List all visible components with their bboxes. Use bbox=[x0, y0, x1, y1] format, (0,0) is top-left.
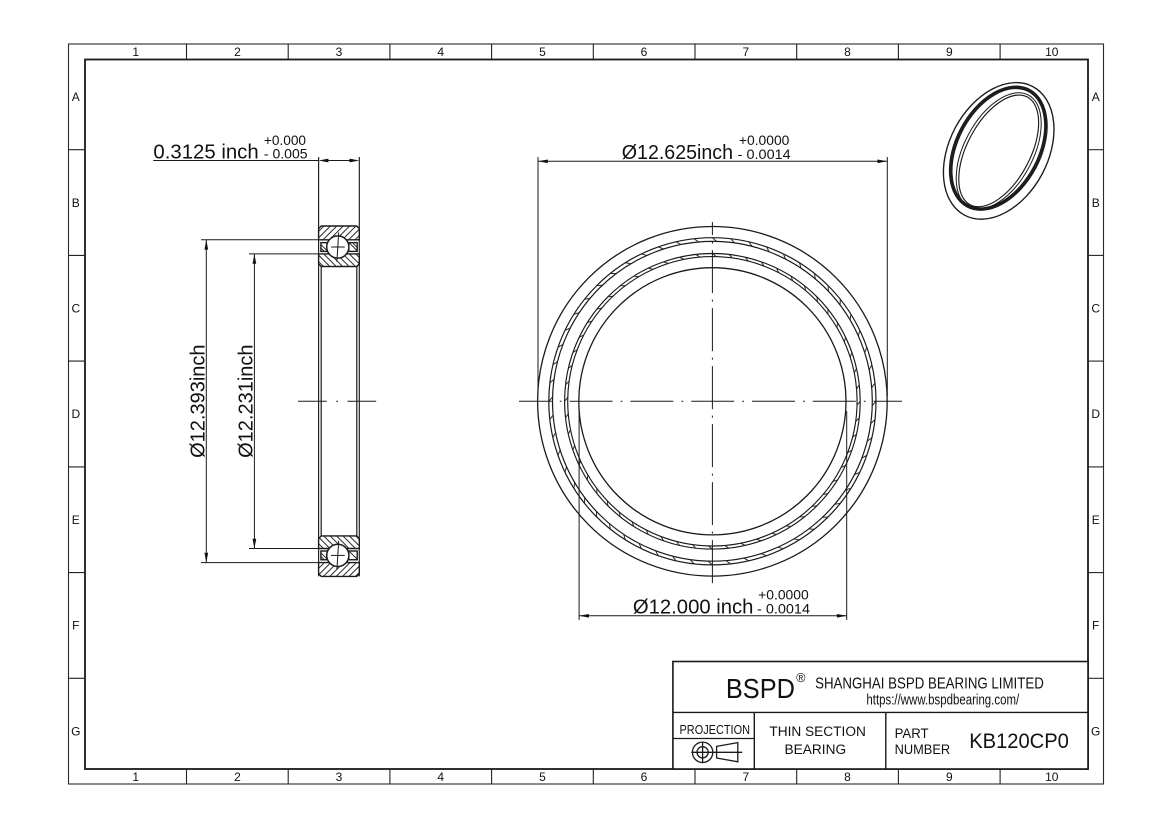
svg-text:D: D bbox=[71, 407, 80, 421]
svg-text:BSPD: BSPD bbox=[726, 673, 795, 704]
svg-text:Ø12.231inch: Ø12.231inch bbox=[235, 345, 257, 458]
svg-text:B: B bbox=[72, 196, 80, 210]
svg-text:G: G bbox=[1091, 724, 1100, 738]
svg-text:F: F bbox=[1092, 619, 1099, 633]
svg-text:5: 5 bbox=[539, 770, 546, 784]
svg-text:1: 1 bbox=[132, 770, 139, 784]
svg-text:THIN SECTION: THIN SECTION bbox=[769, 724, 866, 739]
svg-text:https://www.bspdbearing.com/: https://www.bspdbearing.com/ bbox=[866, 691, 1019, 708]
svg-text:6: 6 bbox=[641, 45, 648, 59]
svg-text:KB120CP0: KB120CP0 bbox=[969, 729, 1069, 753]
svg-text:10: 10 bbox=[1045, 770, 1059, 784]
svg-text:+0.000: +0.000 bbox=[264, 133, 306, 148]
svg-text:7: 7 bbox=[742, 770, 749, 784]
svg-text:2: 2 bbox=[234, 45, 241, 59]
svg-text:- 0.0014: - 0.0014 bbox=[738, 147, 792, 162]
svg-text:6: 6 bbox=[641, 770, 648, 784]
svg-text:F: F bbox=[72, 619, 79, 633]
svg-text:- 0.0014: - 0.0014 bbox=[757, 601, 811, 616]
svg-text:BEARING: BEARING bbox=[785, 742, 847, 757]
svg-text:4: 4 bbox=[437, 770, 444, 784]
svg-text:9: 9 bbox=[946, 770, 953, 784]
svg-text:E: E bbox=[1092, 513, 1100, 527]
svg-text:1: 1 bbox=[132, 45, 139, 59]
svg-text:5: 5 bbox=[539, 45, 546, 59]
svg-text:B: B bbox=[1092, 196, 1100, 210]
svg-text:SHANGHAI BSPD BEARING LIMITED: SHANGHAI BSPD BEARING LIMITED bbox=[815, 675, 1044, 692]
svg-text:3: 3 bbox=[336, 45, 343, 59]
svg-text:A: A bbox=[72, 90, 80, 104]
svg-text:NUMBER: NUMBER bbox=[895, 741, 951, 757]
svg-text:Ø12.000 inch: Ø12.000 inch bbox=[633, 596, 754, 618]
svg-text:- 0.005: - 0.005 bbox=[264, 147, 308, 162]
svg-text:®: ® bbox=[796, 671, 806, 685]
svg-text:D: D bbox=[1091, 407, 1100, 421]
svg-text:PART: PART bbox=[895, 725, 929, 741]
svg-text:Ø12.393inch: Ø12.393inch bbox=[187, 345, 209, 458]
svg-text:C: C bbox=[71, 301, 80, 315]
svg-text:4: 4 bbox=[437, 45, 444, 59]
svg-text:2: 2 bbox=[234, 770, 241, 784]
svg-text:G: G bbox=[71, 724, 80, 738]
svg-text:PROJECTION: PROJECTION bbox=[680, 722, 751, 737]
svg-text:10: 10 bbox=[1045, 45, 1059, 59]
svg-text:0.3125 inch: 0.3125 inch bbox=[153, 141, 258, 163]
svg-text:Ø12.625inch: Ø12.625inch bbox=[622, 142, 733, 164]
svg-text:E: E bbox=[72, 513, 80, 527]
svg-text:C: C bbox=[1091, 301, 1100, 315]
svg-text:9: 9 bbox=[946, 45, 953, 59]
svg-text:A: A bbox=[1092, 90, 1100, 104]
svg-text:8: 8 bbox=[844, 45, 851, 59]
svg-text:8: 8 bbox=[844, 770, 851, 784]
svg-text:3: 3 bbox=[336, 770, 343, 784]
svg-text:7: 7 bbox=[742, 45, 749, 59]
